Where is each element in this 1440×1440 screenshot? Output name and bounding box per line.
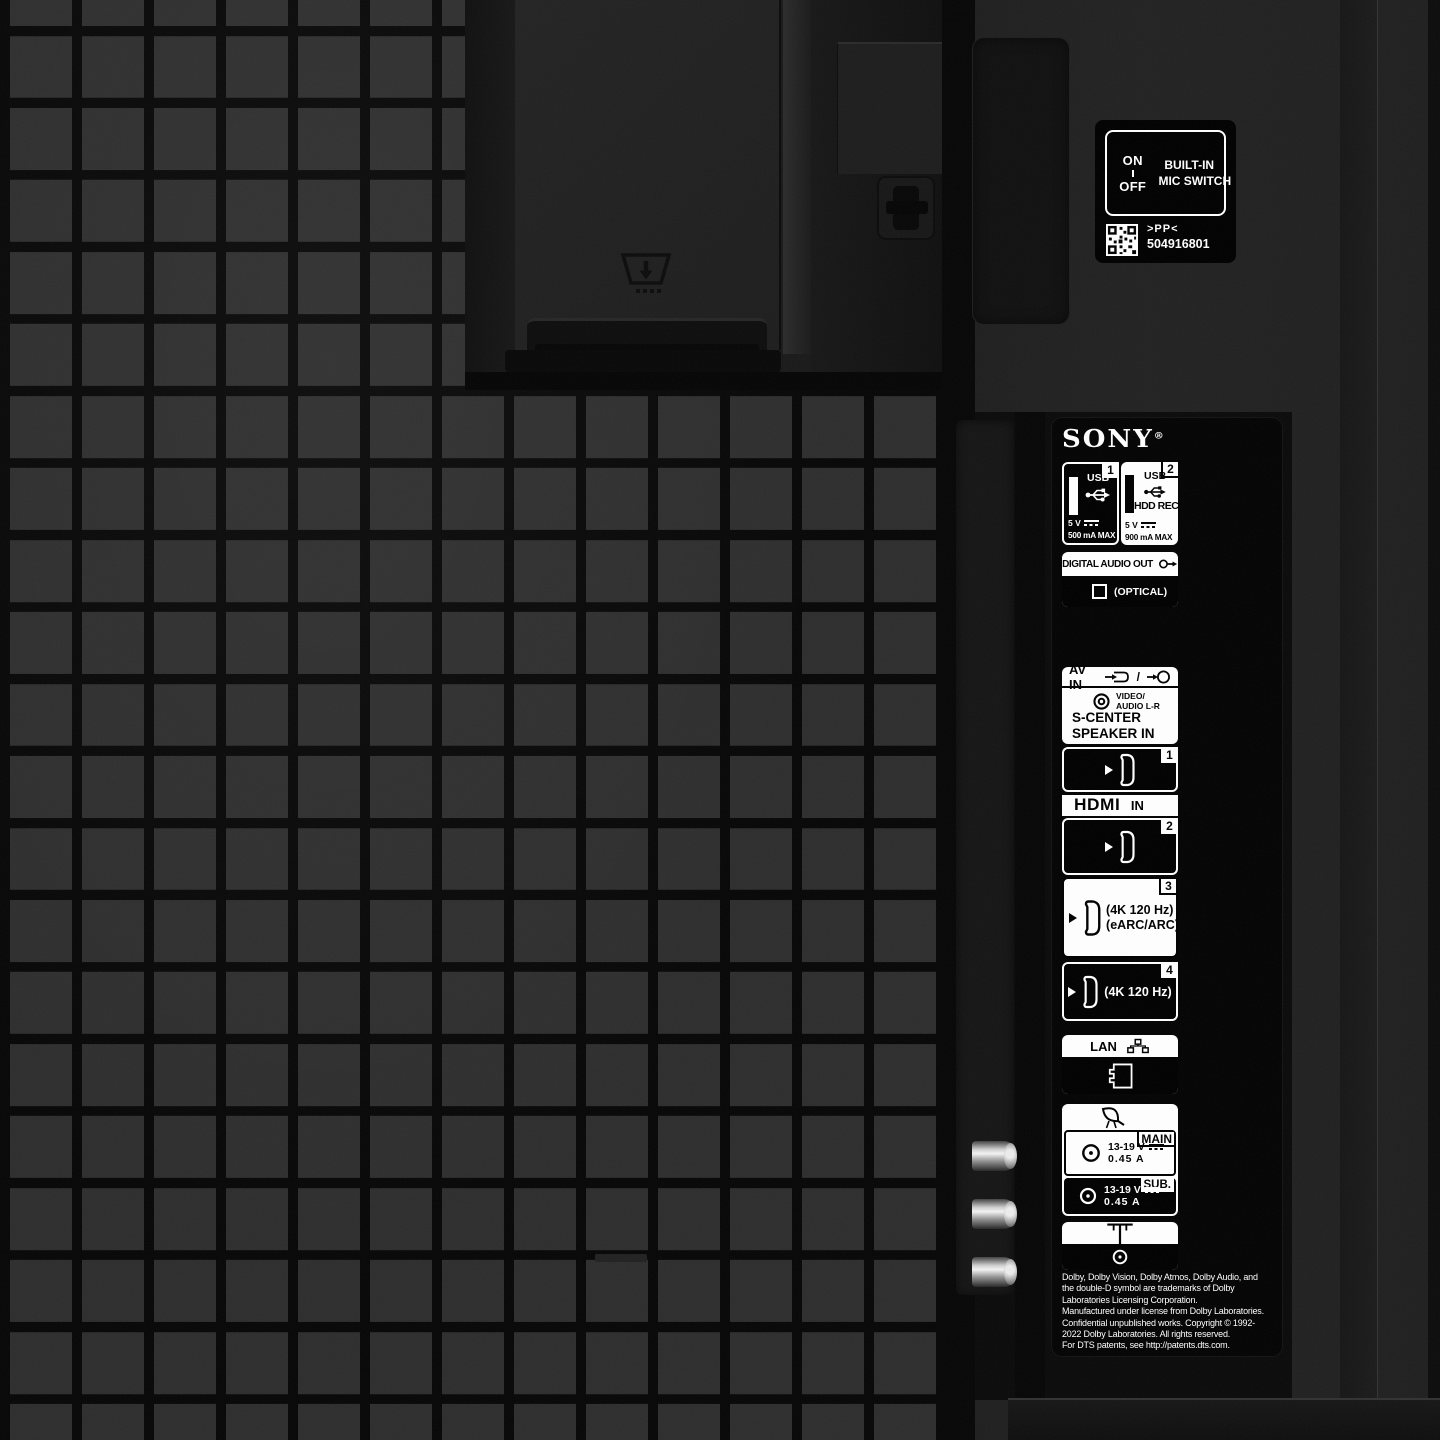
hdmi-connector-icon: [1079, 973, 1099, 1011]
direct-current-icon: [1145, 1187, 1160, 1193]
hdmi-port3-label: 3 (4K 120 Hz) (eARC/ARC): [1062, 877, 1178, 958]
port-number-badge: 1: [1161, 747, 1178, 763]
hdmi-connector-icon: [1080, 896, 1102, 940]
pp-label: >PP<: [1147, 223, 1179, 235]
hdmi-in-heading: HDMI IN: [1062, 795, 1178, 816]
switch-position-bar: [1132, 170, 1134, 177]
signal-in-arrow: [1068, 987, 1076, 997]
av-in-label: AV IN /: [1062, 667, 1178, 744]
sat-sub-section: SUB. 13-19 V 0.45 A: [1064, 1178, 1176, 1214]
seam-groove: [1340, 0, 1378, 1400]
line-input-icon: [1104, 669, 1130, 685]
on-label: ON: [1123, 153, 1143, 168]
port-number-badge: 3: [1159, 879, 1176, 895]
port-number-badge: 2: [1161, 818, 1178, 834]
direct-current-icon: [1084, 520, 1099, 526]
network-nodes-icon: [1126, 1038, 1150, 1054]
ports-bay: SONY® 1 USB: [975, 412, 1292, 1400]
hdmi-connector-icon: [1116, 829, 1136, 865]
usb-port2-label: 2 USB HDD REC: [1121, 462, 1178, 545]
sony-logo: SONY®: [1062, 426, 1164, 454]
optical-port-icon: [1092, 584, 1107, 599]
signal-in-arrow: [1105, 842, 1113, 852]
satellite-section: MAIN 13-19 V 0.45 A: [1062, 1104, 1178, 1216]
direct-current-icon: [1141, 522, 1156, 528]
hdmi-logo: HDMI: [1074, 796, 1120, 815]
coax-connector-icon: [1111, 1248, 1129, 1266]
grid-vent-slot: [595, 1254, 647, 1262]
qr-code: [1106, 224, 1138, 256]
sat-main-section: MAIN 13-19 V 0.45 A: [1064, 1130, 1176, 1176]
panel-right-edge: [1428, 0, 1440, 1400]
ethernet-port-icon: [1104, 1060, 1136, 1092]
side-cover-door: [972, 37, 1070, 325]
tv-back-photo: SONY® 1 USB: [0, 0, 1440, 1440]
audio-output-arrow-icon: [1158, 558, 1178, 570]
signal-in-arrow: [1069, 913, 1077, 923]
io-label-panel: SONY® 1 USB: [1052, 418, 1282, 1356]
coax-connector-icon: [1080, 1142, 1102, 1164]
hdmi-port4-label: 4 (4K 120 Hz): [1062, 962, 1178, 1021]
lan-label: LAN: [1062, 1035, 1178, 1094]
usb-trident-icon: [1141, 484, 1171, 500]
stand-mount-recess: [465, 0, 942, 390]
hdmi-connector-icon: [1116, 753, 1136, 787]
coax-plug-main: [972, 1141, 1014, 1171]
satellite-dish-icon: [1098, 1105, 1128, 1130]
antenna-section: [1062, 1222, 1178, 1270]
s-center-text: S-CENTER SPEAKER IN: [1072, 710, 1155, 742]
coax-plug-sub: [972, 1199, 1014, 1229]
mic-switch-diagram: ON OFF BUILT-IN MIC SWITCH: [1105, 130, 1226, 216]
terrestrial-antenna-icon: [1098, 1222, 1142, 1244]
registered-mark: ®: [1154, 431, 1164, 441]
mic-switch-sticker: ON OFF BUILT-IN MIC SWITCH: [1095, 120, 1236, 263]
digital-audio-out-label: DIGITAL AUDIO OUT (OPTICAL): [1062, 552, 1178, 607]
recess-left-wall: [465, 0, 515, 390]
bottom-ledge: [1008, 1398, 1440, 1440]
coax-connector-icon: [1078, 1186, 1098, 1206]
usb-port-slot: [1125, 475, 1134, 513]
usb-port-slot: [1069, 477, 1078, 515]
jack-input-icon: [1147, 669, 1171, 685]
bay-groove: [1015, 412, 1045, 1400]
usb-port1-label: 1 USB 5 V: [1062, 462, 1119, 545]
hdmi-port2-label: 2: [1062, 818, 1178, 875]
screw-knob: [893, 186, 919, 230]
dolby-legal-text: Dolby, Dolby Vision, Dolby Atmos, Dolby …: [1062, 1272, 1278, 1352]
stand-bracket-lip: [505, 350, 781, 372]
usb-trident-icon: [1084, 486, 1114, 504]
serial-number: 504916801: [1147, 237, 1210, 251]
signal-in-arrow: [1105, 765, 1113, 775]
recess-subpanel: [837, 42, 942, 174]
coax-plug-antenna: [972, 1257, 1014, 1287]
stand-column-ridge: [783, 0, 811, 354]
port-number-badge: 4: [1161, 962, 1178, 978]
off-label: OFF: [1119, 179, 1146, 194]
recess-bottom-shadow: [465, 372, 942, 390]
stand-cable-clip-icon: [617, 250, 675, 298]
hdmi-port1-label: 1: [1062, 747, 1178, 792]
rca-jack-icon: [1092, 692, 1111, 711]
side-frame: SONY® 1 USB: [945, 0, 1440, 1440]
direct-current-icon: [1149, 1144, 1164, 1150]
screw-clip: [877, 176, 935, 240]
